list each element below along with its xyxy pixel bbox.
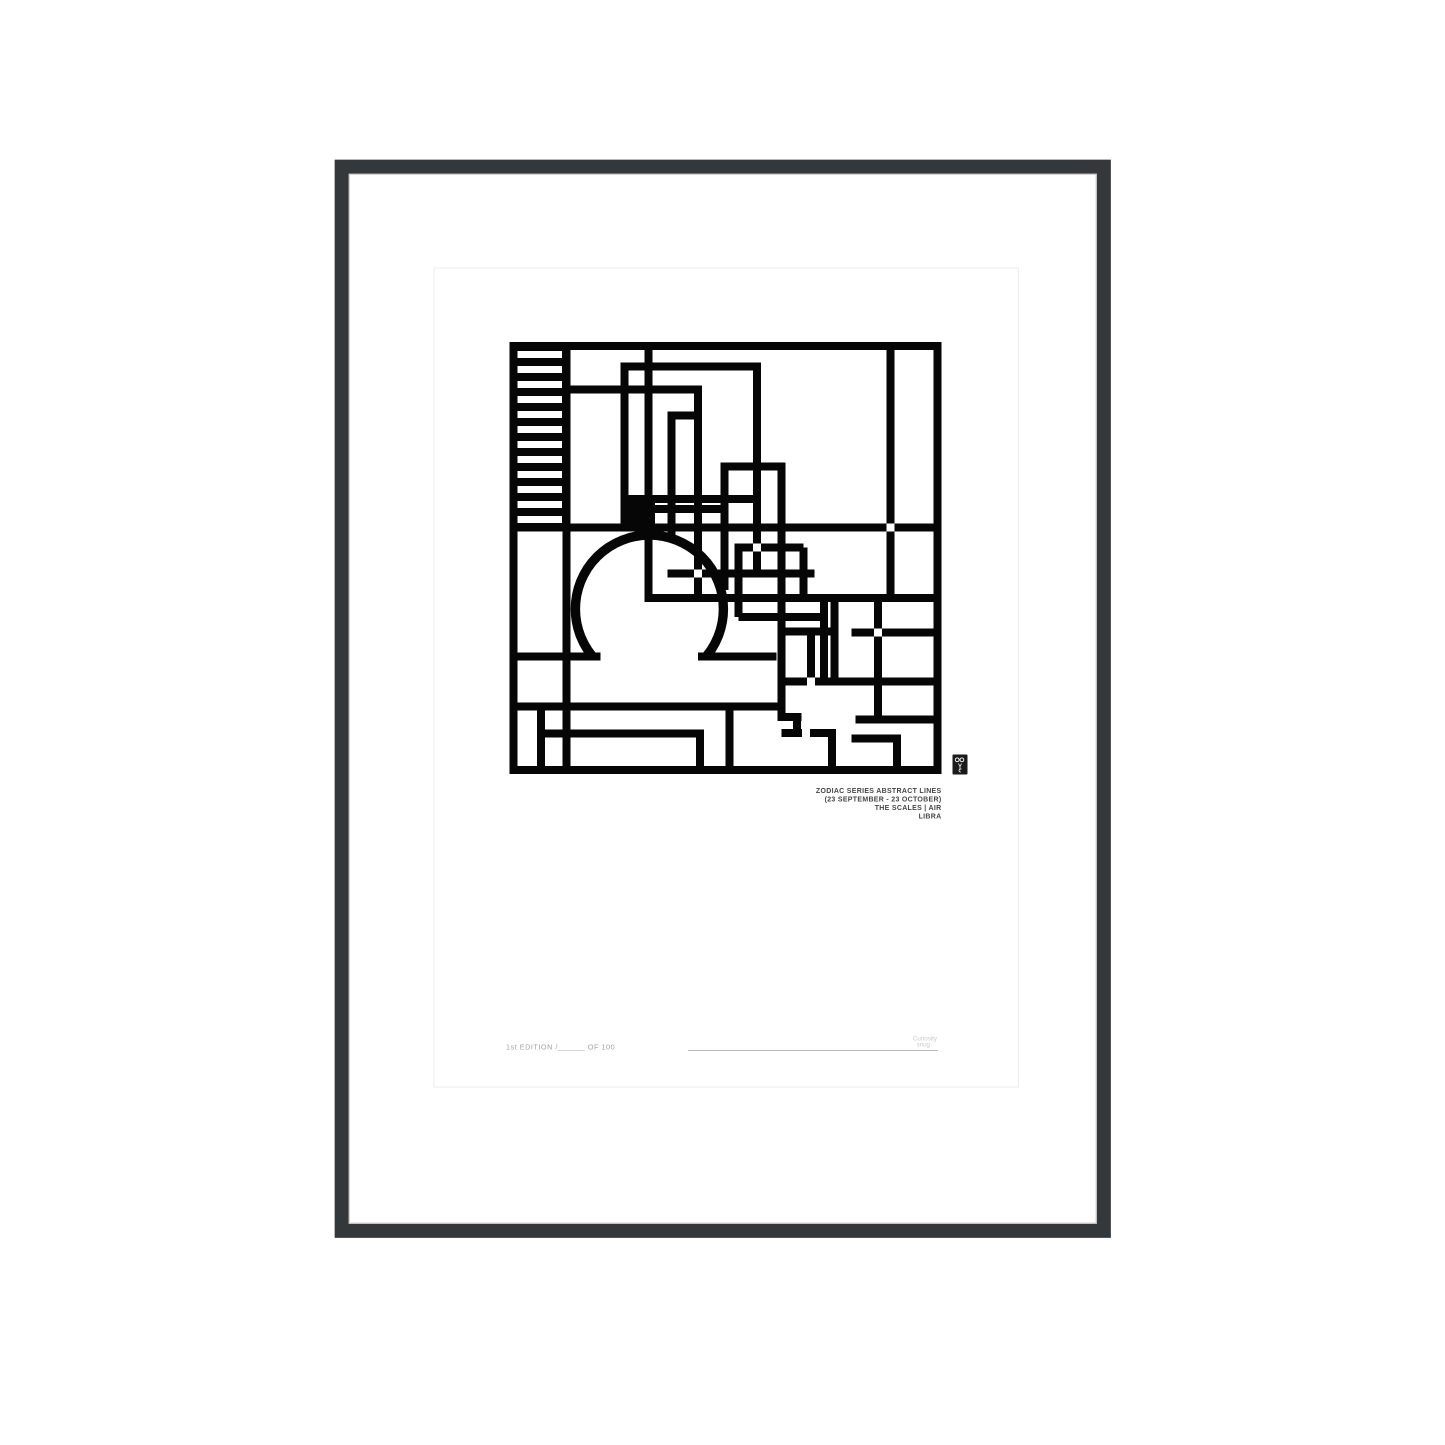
svg-text:(23 SEPTEMBER - 23 OCTOBER): (23 SEPTEMBER - 23 OCTOBER) bbox=[825, 797, 942, 804]
svg-text:LIBRA: LIBRA bbox=[919, 813, 942, 820]
svg-text:1st EDITION /______ OF 100: 1st EDITION /______ OF 100 bbox=[506, 1043, 615, 1052]
svg-text:snug: snug bbox=[917, 1042, 931, 1049]
svg-text:ZODIAC SERIES ABSTRACT LINES: ZODIAC SERIES ABSTRACT LINES bbox=[816, 788, 942, 795]
svg-text:THE SCALES | AIR: THE SCALES | AIR bbox=[875, 805, 942, 812]
